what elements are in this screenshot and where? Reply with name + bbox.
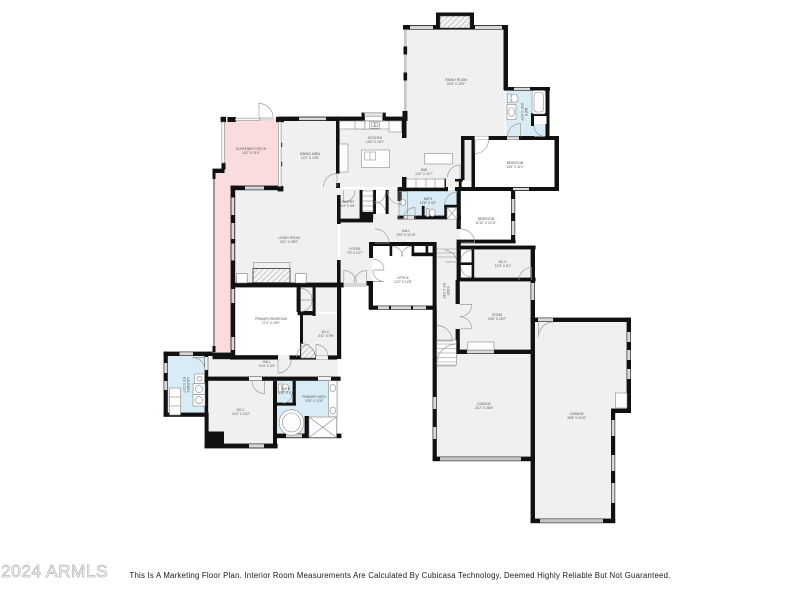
svg-text:KITCHEN14'6" X 15'1": KITCHEN14'6" X 15'1" bbox=[366, 136, 384, 144]
svg-text:BEDROOM14'6" X 11'1": BEDROOM14'6" X 11'1" bbox=[506, 161, 524, 169]
svg-text:FAMILY ROOM21'6" X 23'9": FAMILY ROOM21'6" X 23'9" bbox=[445, 78, 467, 86]
svg-text:LAUNDRY6'1" X 13'7": LAUNDRY6'1" X 13'7" bbox=[182, 377, 190, 394]
svg-text:PANTRY4'4" X 6'6": PANTRY4'4" X 6'6" bbox=[341, 200, 355, 208]
svg-text:GARAGE21'2" X 26'8": GARAGE21'2" X 26'8" bbox=[475, 402, 493, 410]
svg-text:LIVING ROOM23'1" X 26'9": LIVING ROOM23'1" X 26'9" bbox=[278, 236, 300, 244]
svg-text:DINING AREA12'2" X 13'5": DINING AREA12'2" X 13'5" bbox=[300, 152, 321, 160]
svg-text:PRIMARY BATH13'0" X 12'8": PRIMARY BATH13'0" X 12'8" bbox=[302, 395, 326, 403]
svg-text:BEDROOM11'10" X 12'11": BEDROOM11'10" X 12'11" bbox=[475, 217, 496, 225]
